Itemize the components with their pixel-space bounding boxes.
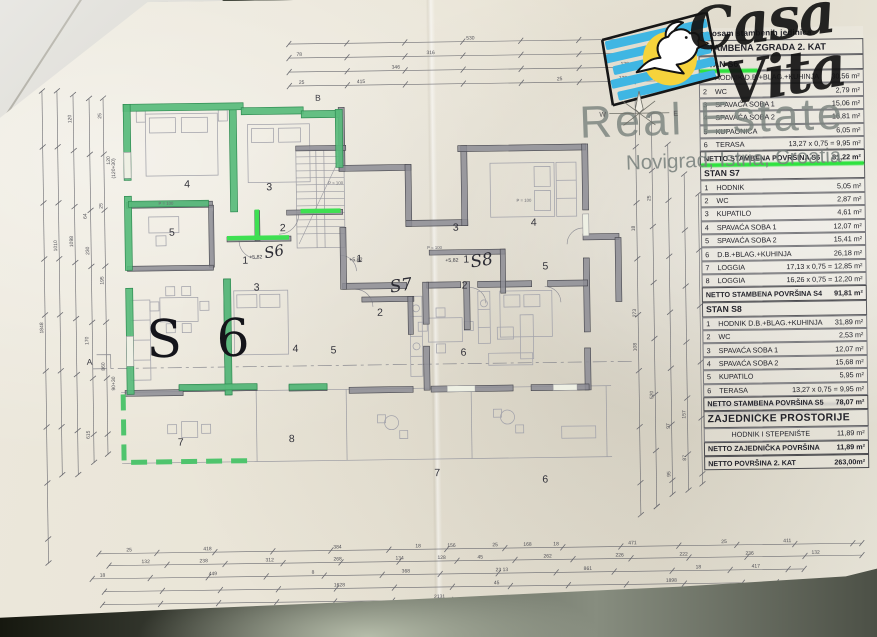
svg-text:95: 95 — [666, 471, 672, 477]
svg-text:18: 18 — [415, 543, 421, 549]
svg-text:411: 411 — [783, 538, 791, 544]
svg-text:B: B — [315, 93, 321, 103]
svg-text:A: A — [87, 357, 93, 367]
svg-text:78: 78 — [296, 52, 302, 58]
svg-text:8: 8 — [289, 433, 295, 445]
area-row: NETTO STAMBENA POVRŠINA S681,22 m² — [700, 149, 865, 165]
svg-text:520: 520 — [649, 390, 655, 399]
svg-text:+5,82: +5,82 — [349, 257, 362, 263]
svg-text:25: 25 — [557, 76, 563, 82]
svg-text:P = 100: P = 100 — [427, 245, 443, 250]
svg-text:471: 471 — [628, 540, 637, 546]
svg-text:18: 18 — [631, 225, 637, 231]
svg-text:+5,82: +5,82 — [249, 254, 262, 260]
svg-text:384: 384 — [333, 544, 342, 550]
svg-text:2131: 2131 — [434, 594, 445, 600]
svg-text:S6: S6 — [263, 241, 286, 262]
svg-text:120: 120 — [621, 61, 630, 67]
svg-text:346: 346 — [392, 65, 401, 71]
svg-text:128: 128 — [437, 555, 446, 561]
svg-text:368: 368 — [402, 568, 411, 574]
svg-text:1: 1 — [463, 254, 469, 266]
svg-text:2: 2 — [377, 307, 383, 319]
svg-text:2: 2 — [280, 222, 286, 234]
svg-text:415: 415 — [357, 79, 366, 85]
svg-text:1898: 1898 — [666, 578, 677, 584]
svg-text:168: 168 — [523, 542, 532, 548]
svg-text:262: 262 — [543, 553, 552, 559]
svg-text:226: 226 — [615, 552, 624, 558]
svg-text:6: 6 — [542, 473, 548, 485]
svg-text:25: 25 — [721, 539, 727, 545]
svg-text:449: 449 — [209, 571, 218, 577]
unit-s6-label: S 6 — [146, 309, 259, 371]
svg-text:312: 312 — [265, 557, 274, 563]
interior-lines — [118, 146, 612, 464]
svg-text:90+30: 90+30 — [111, 376, 117, 390]
svg-text:5: 5 — [330, 344, 336, 356]
svg-text:2: 2 — [462, 280, 468, 292]
svg-text:120: 120 — [67, 115, 73, 124]
svg-text:1: 1 — [242, 255, 248, 267]
svg-text:4: 4 — [184, 178, 190, 190]
svg-text:156: 156 — [447, 543, 456, 549]
svg-text:236: 236 — [745, 551, 754, 557]
svg-text:P = 100: P = 100 — [158, 201, 174, 206]
svg-text:25: 25 — [299, 80, 305, 86]
svg-text:18: 18 — [696, 564, 702, 570]
svg-text:98: 98 — [691, 60, 697, 66]
svg-text:273: 273 — [632, 309, 638, 318]
svg-text:418: 418 — [203, 546, 212, 552]
svg-text:18: 18 — [648, 47, 654, 53]
svg-text:97: 97 — [666, 423, 672, 429]
svg-text:87: 87 — [682, 455, 688, 461]
svg-text:860: 860 — [101, 362, 107, 371]
svg-text:S8: S8 — [469, 249, 494, 272]
svg-text:45: 45 — [494, 580, 500, 586]
svg-text:132: 132 — [141, 559, 150, 565]
svg-text:7: 7 — [434, 467, 440, 479]
svg-text:23 13: 23 13 — [496, 567, 509, 573]
svg-text:1098: 1098 — [69, 236, 75, 247]
svg-text:95: 95 — [665, 75, 671, 81]
svg-text:25: 25 — [98, 203, 104, 209]
s6-terrace-dashed-outline — [123, 393, 256, 463]
svg-text:4: 4 — [531, 217, 537, 229]
svg-text:5: 5 — [169, 227, 175, 239]
svg-text:238: 238 — [199, 558, 208, 564]
svg-text:1628: 1628 — [334, 582, 345, 588]
svg-text:25: 25 — [646, 195, 652, 201]
svg-text:615: 615 — [86, 430, 92, 439]
svg-text:5: 5 — [542, 260, 548, 272]
svg-text:268: 268 — [333, 556, 342, 562]
svg-text:+5,82: +5,82 — [445, 258, 458, 264]
svg-text:170: 170 — [84, 336, 90, 345]
svg-text:195: 195 — [100, 276, 106, 285]
svg-text:3: 3 — [453, 222, 459, 234]
svg-text:222: 222 — [679, 552, 688, 558]
svg-text:6: 6 — [461, 347, 467, 359]
svg-text:861: 861 — [584, 566, 593, 572]
svg-text:S7: S7 — [388, 274, 413, 297]
svg-text:P = 100: P = 100 — [328, 180, 344, 185]
svg-text:1848: 1848 — [39, 322, 45, 333]
svg-text:132: 132 — [811, 550, 820, 556]
svg-text:25: 25 — [126, 547, 132, 553]
svg-text:7: 7 — [178, 437, 184, 449]
svg-text:417: 417 — [752, 564, 761, 570]
svg-text:45: 45 — [477, 554, 483, 560]
svg-text:132: 132 — [659, 61, 668, 67]
svg-text:3: 3 — [266, 181, 272, 193]
svg-text:P = 100: P = 100 — [516, 198, 532, 203]
svg-text:64: 64 — [83, 213, 89, 219]
svg-text:4: 4 — [292, 343, 298, 355]
area-table: sa osam stambenih jedinica STAMBENA ZGRA… — [698, 26, 869, 470]
svg-text:25: 25 — [97, 113, 103, 119]
svg-text:25: 25 — [492, 542, 498, 548]
area-row: NETTO POVRŠINA 2. KAT263,00m² — [704, 454, 869, 470]
svg-text:1010: 1010 — [53, 240, 59, 251]
svg-text:18: 18 — [553, 541, 559, 547]
svg-text:230: 230 — [85, 246, 91, 255]
svg-text:8: 8 — [312, 570, 315, 576]
photo-of-floor-plan: 43521345781261234576S6S7S8+5,82+5,82+5,8… — [0, 0, 877, 637]
svg-text:(120+30): (120+30) — [111, 158, 117, 179]
svg-text:134: 134 — [395, 556, 404, 562]
svg-text:3: 3 — [254, 282, 260, 294]
floor-plan-sheet: 43521345781261234576S6S7S8+5,82+5,82+5,8… — [0, 0, 877, 626]
svg-text:157: 157 — [681, 410, 687, 419]
svg-text:530: 530 — [466, 35, 475, 41]
svg-text:316: 316 — [426, 50, 435, 56]
svg-text:18: 18 — [100, 573, 106, 579]
svg-text:128: 128 — [619, 75, 628, 81]
svg-text:108: 108 — [632, 343, 638, 352]
